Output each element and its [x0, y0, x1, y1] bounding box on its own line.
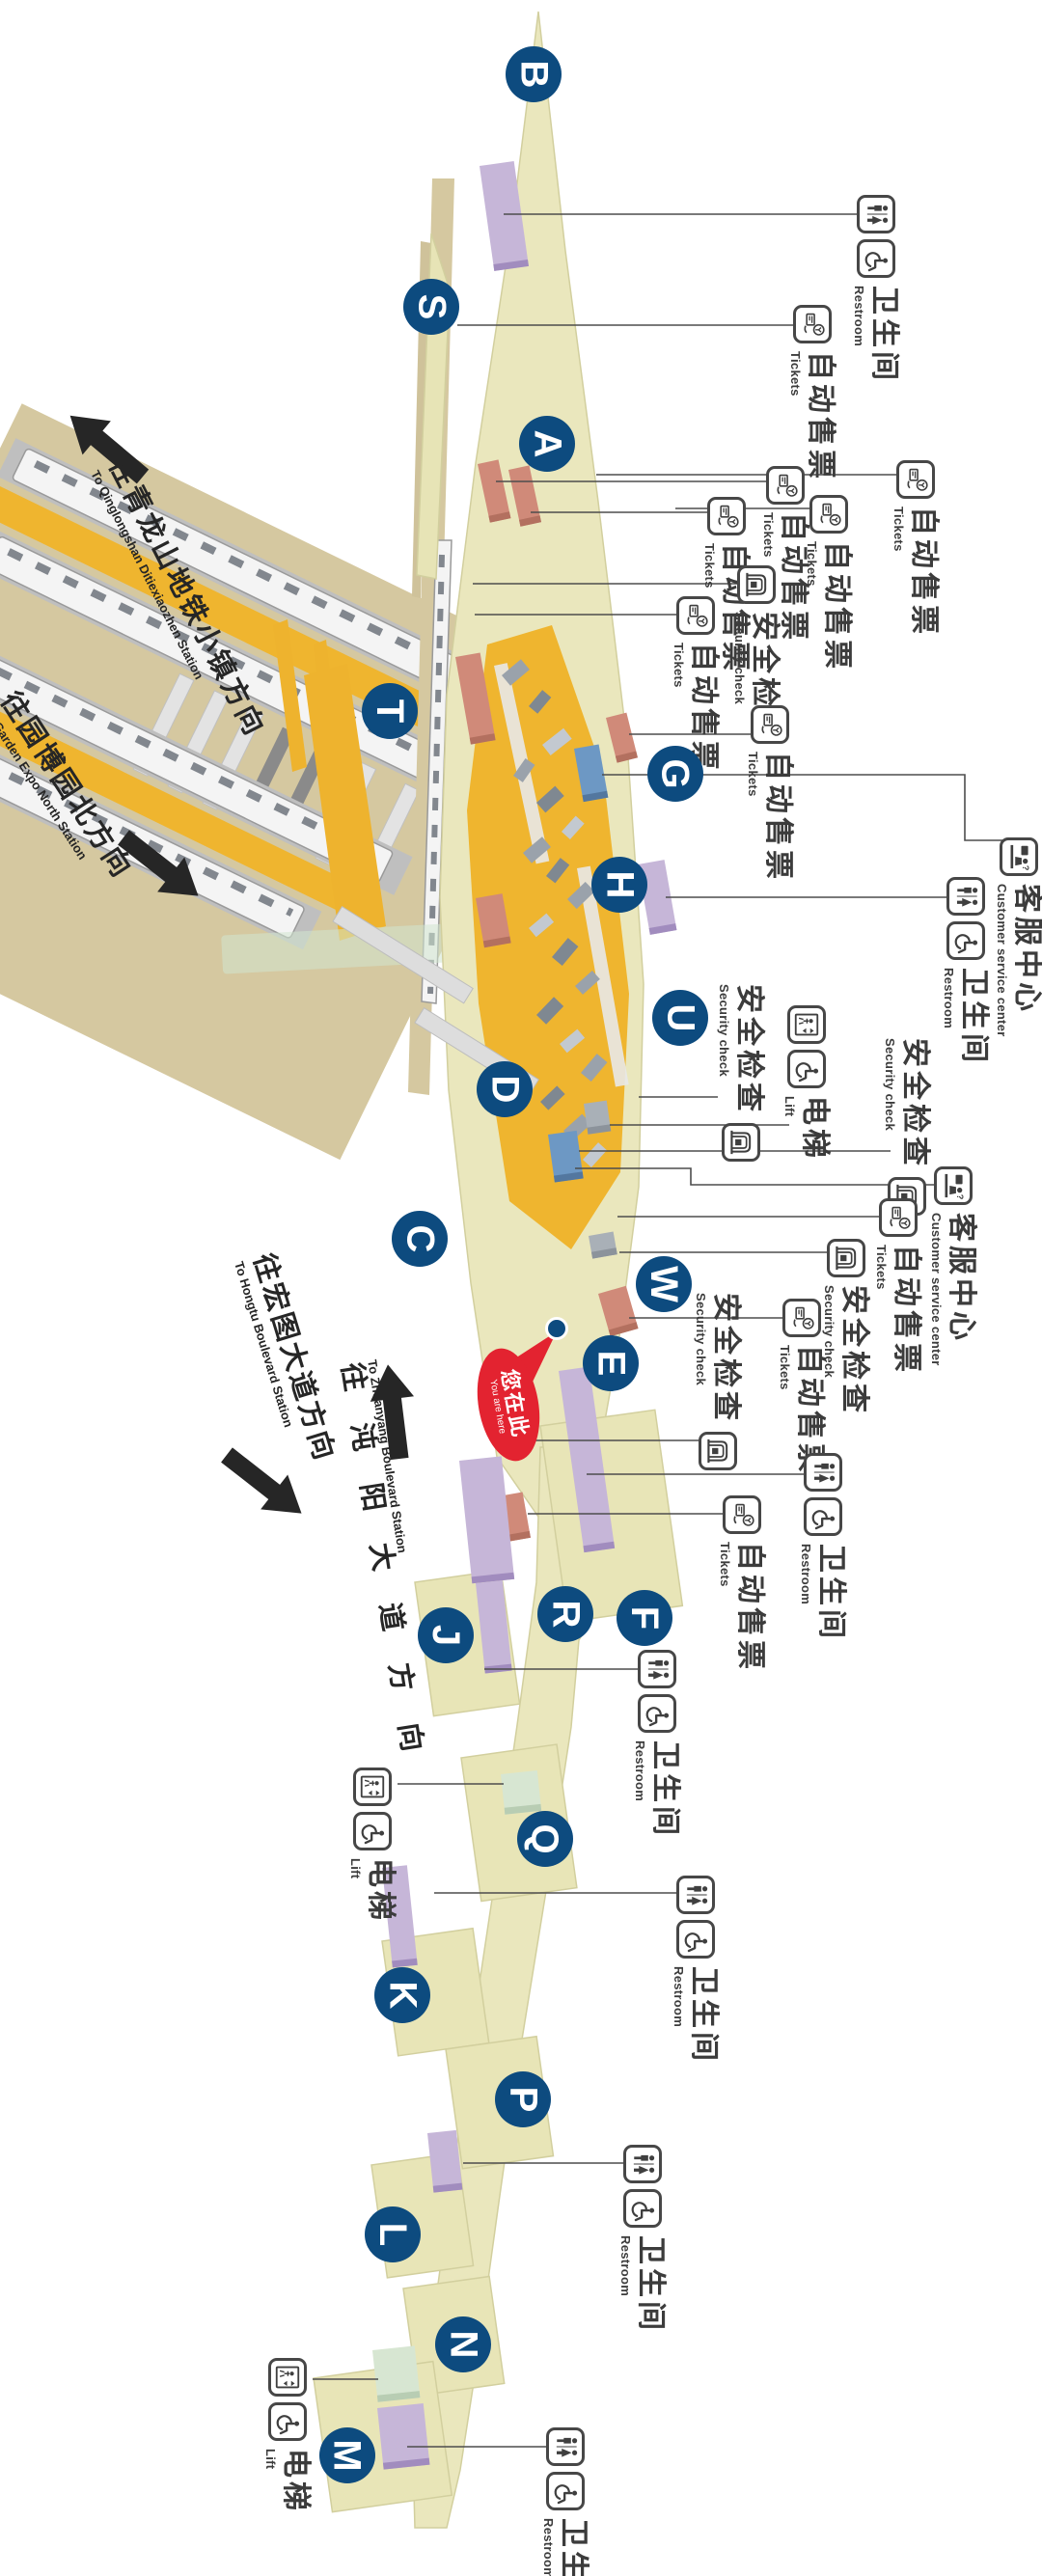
- svg-text:?: ?: [955, 1194, 965, 1200]
- label-text-cn: 自动售票: [822, 541, 853, 672]
- label-text-en: Restroom: [619, 2235, 634, 2334]
- label-security: 安全检查Security check: [823, 1239, 870, 1418]
- exit-letter: D: [485, 1076, 524, 1104]
- label-tickets: 自动售票Tickets: [875, 1198, 922, 1378]
- label-text: 客服中心Customer service center: [996, 884, 1042, 1037]
- label-text-en: Lift: [783, 1096, 798, 1162]
- label-text: 安全检查Security check: [718, 984, 765, 1115]
- label-text-cn: 卫生间: [636, 2235, 667, 2334]
- exit-letter: H: [600, 871, 639, 899]
- label-text-cn: 电梯: [281, 2449, 312, 2514]
- exit-marker-S: S: [403, 279, 459, 335]
- exit-letter: N: [444, 2331, 482, 2359]
- label-text: 卫生间Restroom: [542, 2518, 590, 2576]
- map-block-lift: [501, 1770, 541, 1815]
- exit-letter: W: [644, 1266, 683, 1302]
- label-text-cn: 客服中心: [1012, 884, 1042, 1037]
- label-restroom: 卫生间Restroom: [853, 195, 900, 386]
- tickets-icon: [676, 596, 715, 635]
- label-customer: ?客服中心Customer service center: [930, 1166, 977, 1368]
- lift-icon: [268, 2358, 307, 2397]
- label-restroom: 卫生间Restroom: [542, 2427, 590, 2576]
- label-text: 卫生间Restroom: [619, 2235, 667, 2334]
- label-text-cn: 自动售票: [891, 1245, 922, 1376]
- label-text: 安全检查Security check: [823, 1285, 870, 1416]
- label-text-en: Restroom: [672, 1966, 687, 2065]
- label-text-en: Restroom: [542, 2518, 557, 2576]
- map-block-lift: [372, 2345, 420, 2401]
- label-text-cn: 自动售票: [779, 512, 809, 644]
- label-text-en: Restroom: [800, 1544, 814, 1642]
- lift-icon: [787, 1005, 826, 1044]
- accessible-icon: [946, 921, 985, 960]
- exit-marker-A: A: [519, 416, 575, 472]
- label-tickets: 自动售票Tickets: [789, 305, 836, 484]
- label-text: 自动售票Tickets: [875, 1245, 922, 1376]
- label-text-cn: 安全检查: [711, 1293, 742, 1424]
- restroom-icon: [857, 195, 895, 233]
- exit-marker-L: L: [365, 2206, 421, 2262]
- exit-marker-B: B: [506, 46, 562, 102]
- accessible-icon: [623, 2189, 662, 2228]
- exit-marker-T: T: [362, 683, 418, 739]
- label-text-cn: 卫生间: [559, 2518, 590, 2576]
- label-text: 卫生间Restroom: [800, 1544, 847, 1642]
- label-tickets: 自动售票Tickets: [892, 460, 940, 640]
- label-text-en: Lift: [349, 1858, 364, 1924]
- accessible-icon: [787, 1050, 826, 1088]
- station-map: 您在此 You are here 卫生间Restroom自动售票Tickets自…: [0, 0, 1042, 2576]
- svg-text:?: ?: [1021, 865, 1030, 871]
- accessible-icon: [638, 1694, 676, 1733]
- accessible-icon: [268, 2402, 307, 2441]
- accessible-icon: [804, 1497, 842, 1536]
- exit-marker-J: J: [418, 1607, 474, 1663]
- exit-letter: A: [528, 430, 566, 458]
- exit-letter: J: [426, 1625, 465, 1646]
- label-text-en: Security check: [718, 984, 732, 1115]
- label-text-en: Tickets: [875, 1245, 890, 1376]
- customer-icon: ?: [934, 1166, 973, 1205]
- exit-letter: T: [370, 699, 409, 723]
- label-restroom: 卫生间Restroom: [619, 2145, 667, 2336]
- label-text-en: Tickets: [779, 1345, 793, 1476]
- label-text-cn: 安全检查: [900, 1038, 931, 1169]
- exit-letter: L: [373, 2223, 412, 2246]
- label-text: 自动售票Tickets: [789, 351, 836, 482]
- exit-letter: U: [661, 1004, 699, 1032]
- map-block-restroom: [459, 1456, 514, 1583]
- restroom-icon: [623, 2145, 662, 2183]
- label-text-en: Tickets: [719, 1542, 733, 1673]
- label-text-cn: 卫生间: [689, 1966, 720, 2065]
- label-text-cn: 自动售票: [763, 752, 794, 883]
- exit-letter: S: [412, 294, 451, 320]
- tickets-icon: [896, 460, 935, 499]
- label-text-cn: 卫生间: [959, 968, 990, 1066]
- label-text: 安全检查Security check: [884, 1038, 931, 1169]
- label-text-en: Security check: [884, 1038, 898, 1169]
- map-block-lift: [584, 1101, 611, 1135]
- tickets-icon: [751, 705, 789, 744]
- label-text-en: Restroom: [943, 968, 957, 1066]
- label-security: 安全检查Security check: [718, 982, 765, 1162]
- label-security: 安全检查Security check: [695, 1291, 742, 1470]
- label-text-en: Customer service center: [930, 1213, 945, 1366]
- label-restroom: 卫生间Restroom: [800, 1453, 847, 1644]
- tickets-icon: [782, 1299, 821, 1337]
- label-restroom: 卫生间Restroom: [672, 1876, 720, 2067]
- security-icon: [722, 1123, 760, 1162]
- label-restroom: 卫生间Restroom: [634, 1650, 681, 1841]
- exit-letter: Q: [526, 1823, 564, 1853]
- restroom-icon: [546, 2427, 585, 2466]
- you-are-here-dot: [547, 1319, 567, 1339]
- label-text-cn: 电梯: [800, 1096, 831, 1162]
- accessible-icon: [676, 1920, 715, 1959]
- label-text: 电梯Lift: [783, 1096, 831, 1162]
- label-restroom: 卫生间Restroom: [943, 877, 990, 1068]
- label-text-cn: 自动售票: [735, 1542, 766, 1673]
- label-tickets: 自动售票Tickets: [719, 1495, 766, 1675]
- security-icon: [827, 1239, 865, 1277]
- restroom-icon: [638, 1650, 676, 1688]
- label-text: 自动售票Tickets: [892, 507, 940, 638]
- exit-marker-E: E: [583, 1335, 639, 1391]
- exit-marker-F: F: [617, 1590, 672, 1646]
- label-text-en: Customer service center: [996, 884, 1010, 1037]
- accessible-icon: [353, 1812, 392, 1850]
- exit-marker-M: M: [319, 2427, 375, 2483]
- label-text-cn: 电梯: [366, 1858, 397, 1924]
- label-text: 自动售票Tickets: [719, 1542, 766, 1673]
- label-text-cn: 自动售票: [806, 351, 836, 482]
- label-tickets: 自动售票Tickets: [747, 705, 794, 885]
- label-text-en: Tickets: [789, 351, 804, 482]
- exit-marker-K: K: [374, 1967, 430, 2023]
- label-text-en: Tickets: [892, 507, 907, 638]
- exit-marker-H: H: [591, 857, 647, 913]
- label-text: 自动售票Tickets: [747, 752, 794, 883]
- label-text-cn: 客服中心: [946, 1213, 977, 1366]
- exit-letter: K: [383, 1982, 422, 2010]
- tickets-icon: [766, 466, 805, 505]
- restroom-icon: [946, 877, 985, 916]
- label-text-cn: 自动售票: [909, 507, 940, 638]
- label-text: 电梯Lift: [349, 1858, 397, 1924]
- accessible-icon: [857, 239, 895, 278]
- tickets-icon: [809, 495, 848, 534]
- exit-marker-R: R: [537, 1586, 593, 1642]
- label-text-en: Lift: [264, 2449, 279, 2514]
- exit-letter: C: [400, 1225, 439, 1253]
- label-customer: ?客服中心Customer service center: [996, 837, 1042, 1039]
- label-text-en: Tickets: [747, 752, 761, 883]
- exit-letter: M: [328, 2439, 367, 2471]
- label-text-cn: 卫生间: [650, 1740, 681, 1839]
- label-text: 安全检查Security check: [695, 1293, 742, 1424]
- exit-letter: G: [656, 758, 695, 788]
- exit-letter: P: [504, 2087, 542, 2113]
- exit-letter: B: [514, 61, 553, 89]
- label-tickets: 自动售票Tickets: [779, 1299, 826, 1478]
- exit-marker-G: G: [647, 746, 703, 802]
- label-text-cn: 安全检查: [839, 1285, 870, 1416]
- label-text: 自动售票Tickets: [806, 541, 853, 672]
- label-text: 卫生间Restroom: [943, 968, 990, 1066]
- label-lift: 电梯Lift: [264, 2358, 312, 2516]
- exit-letter: R: [546, 1601, 585, 1629]
- label-text: 电梯Lift: [264, 2449, 312, 2514]
- label-text-en: Restroom: [634, 1740, 648, 1839]
- label-text: 卫生间Restroom: [672, 1966, 720, 2065]
- label-text-cn: 安全检查: [734, 984, 765, 1115]
- label-lift: 电梯Lift: [783, 1005, 831, 1164]
- label-text: 卫生间Restroom: [853, 286, 900, 384]
- accessible-icon: [546, 2472, 585, 2510]
- label-security: 安全检查Security check: [884, 1036, 931, 1216]
- label-text-cn: 卫生间: [869, 286, 900, 384]
- exit-marker-W: W: [636, 1256, 692, 1312]
- security-icon: [699, 1432, 737, 1470]
- tickets-icon: [879, 1198, 918, 1237]
- label-text-en: Restroom: [853, 286, 867, 384]
- exit-letter: F: [625, 1606, 664, 1630]
- label-text-en: Tickets: [806, 541, 820, 672]
- exit-marker-P: P: [495, 2071, 551, 2127]
- label-lift: 电梯Lift: [349, 1768, 397, 1926]
- exit-marker-N: N: [435, 2316, 491, 2372]
- exit-marker-Q: Q: [517, 1811, 573, 1867]
- restroom-icon: [676, 1876, 715, 1914]
- label-text-cn: 卫生间: [816, 1544, 847, 1642]
- exit-letter: E: [591, 1351, 630, 1377]
- label-text: 客服中心Customer service center: [930, 1213, 977, 1366]
- lift-icon: [353, 1768, 392, 1806]
- tickets-icon: [707, 497, 746, 535]
- map-block-equipment: [589, 1231, 617, 1258]
- map-block-restroom: [377, 2403, 429, 2470]
- tickets-icon: [723, 1495, 761, 1534]
- label-text-en: Security check: [733, 612, 748, 743]
- restroom-icon: [804, 1453, 842, 1492]
- exit-marker-U: U: [652, 990, 708, 1046]
- tickets-icon: [793, 305, 832, 343]
- security-icon: [737, 565, 776, 604]
- customer-icon: ?: [1000, 837, 1038, 876]
- label-text: 卫生间Restroom: [634, 1740, 681, 1839]
- label-tickets: 自动售票Tickets: [806, 495, 853, 674]
- exit-marker-C: C: [392, 1211, 448, 1267]
- exit-marker-D: D: [477, 1061, 533, 1117]
- label-text-en: Security check: [695, 1293, 709, 1424]
